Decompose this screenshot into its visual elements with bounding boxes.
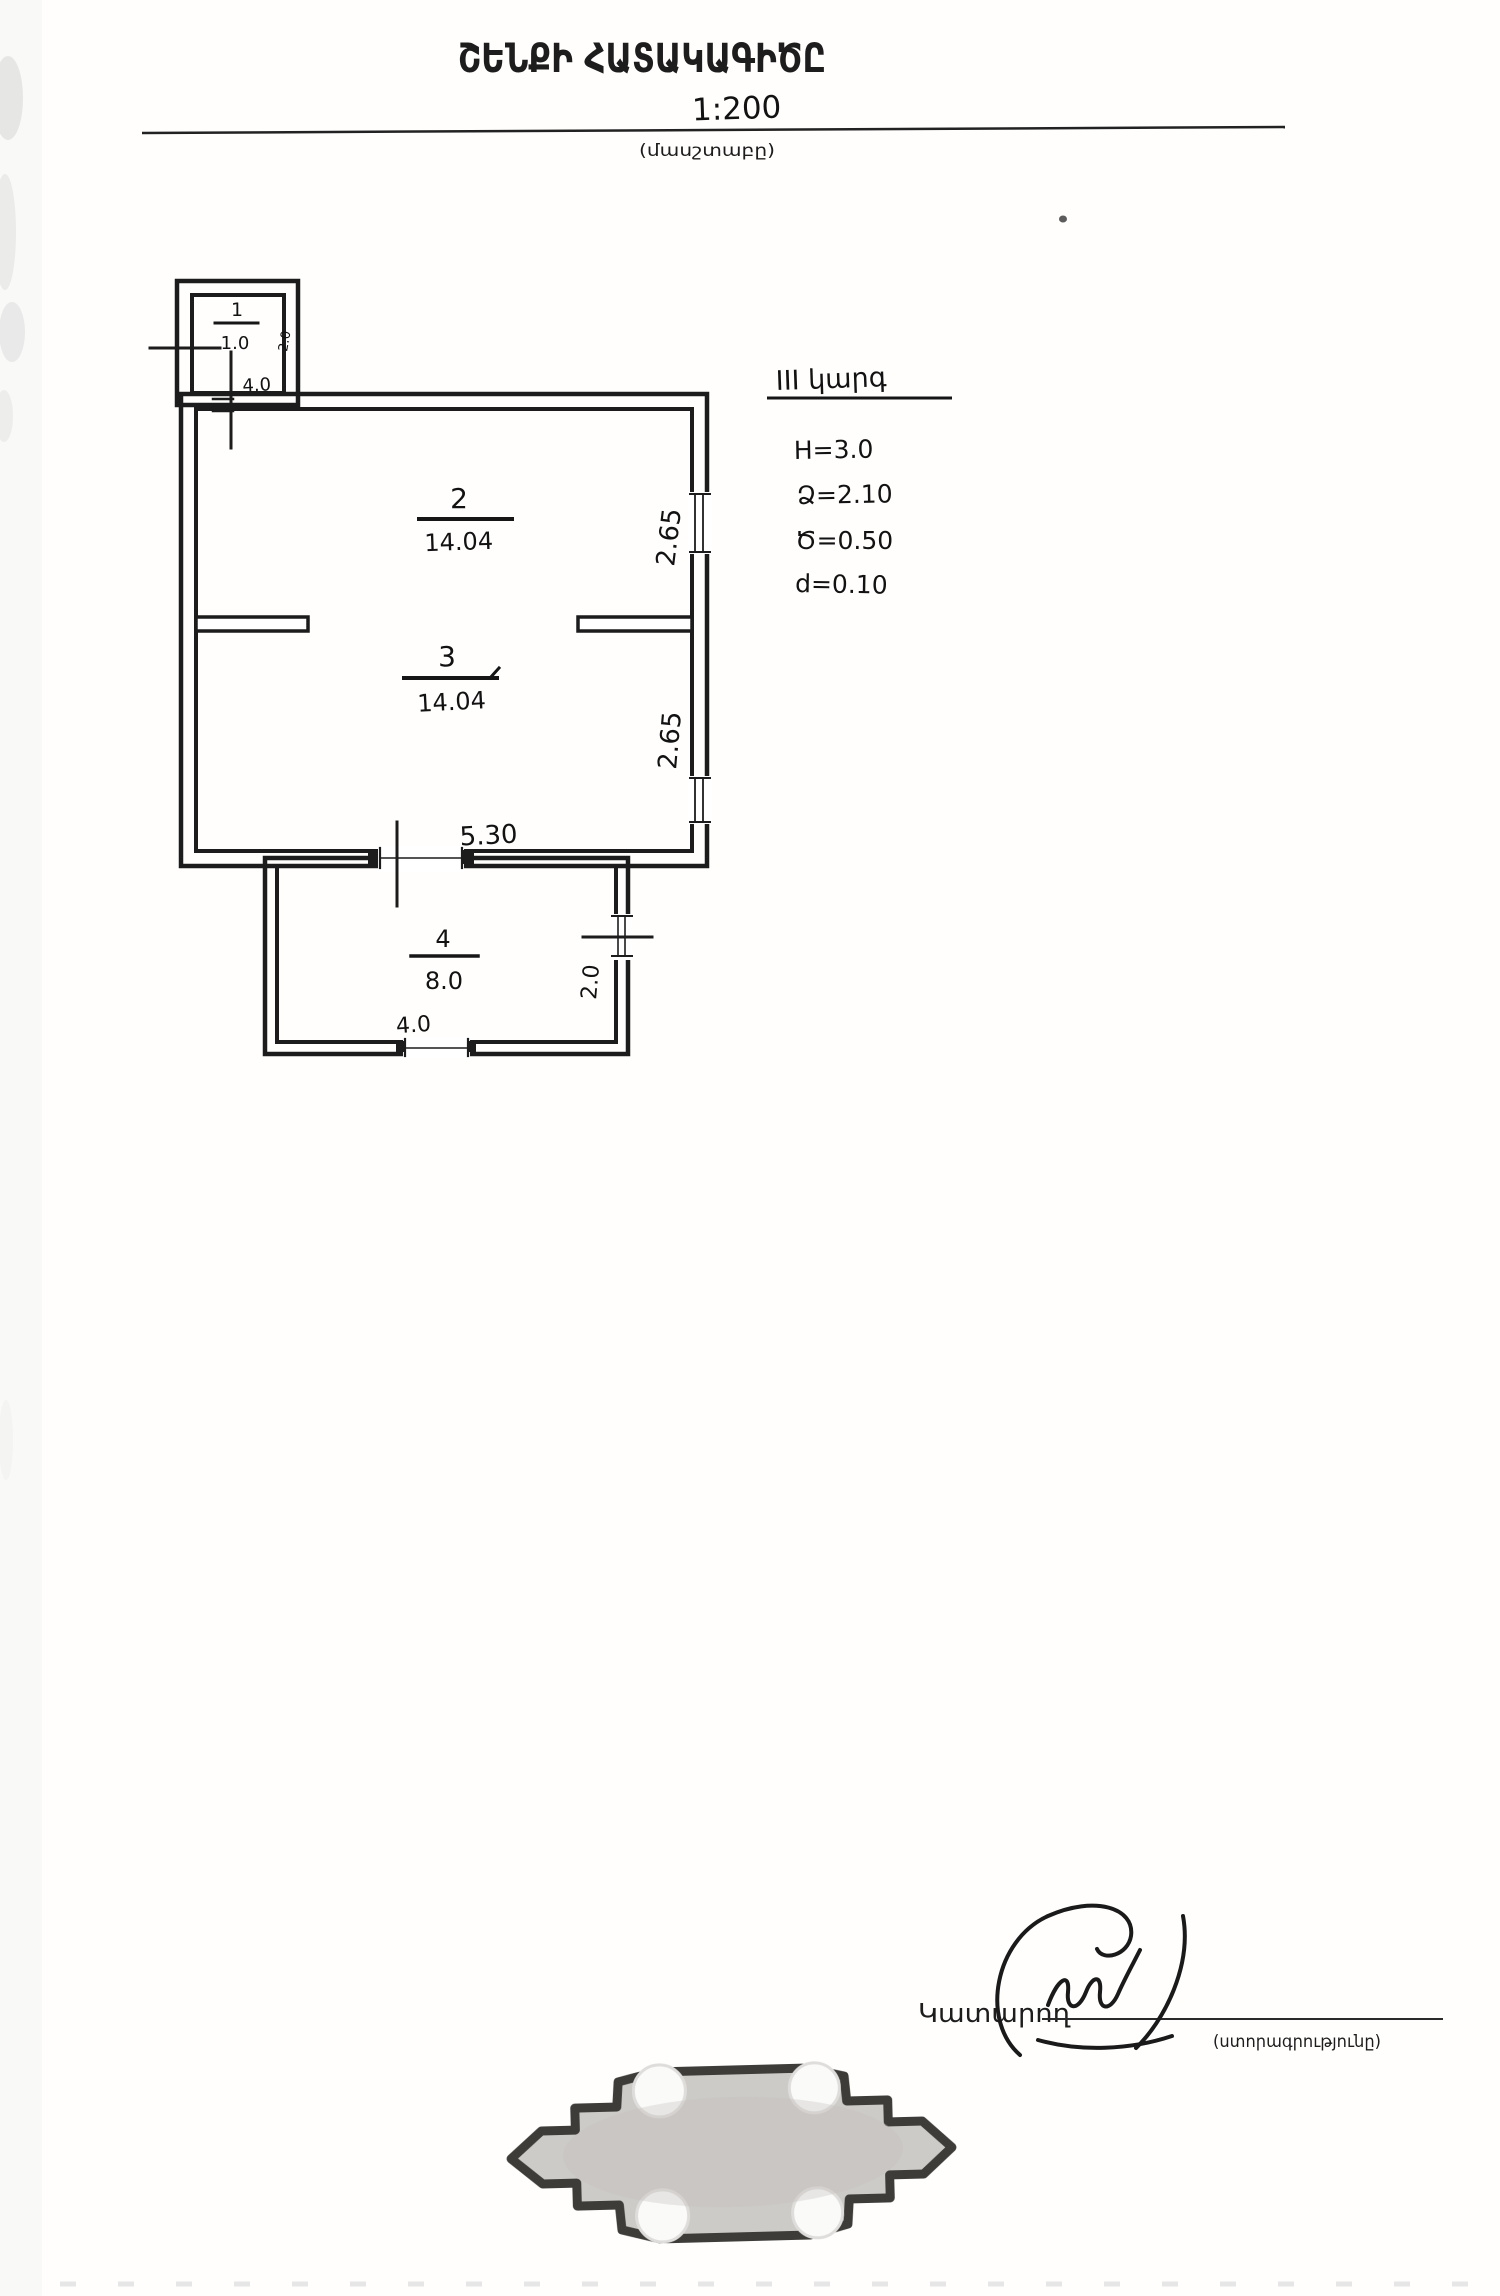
signature-mark [997,1906,1184,2055]
room4-area: 8.0 [425,967,463,995]
annex-inner-wall [277,866,616,1042]
window-room3 [688,776,712,824]
scale-rule [142,127,1285,133]
room1-area: 1.0 [221,333,250,354]
room4-width-dim: 4.0 [395,1012,432,1039]
room3-label: 3 14.04 [404,640,499,718]
header: ՇԵՆՔԻ ՀԱՏԱԿԱԳԻԾԸ 1:200 (մասշտաբը) [142,36,1285,161]
partition-right-stub [578,617,692,631]
room1-width-dim: 4.0 [242,374,272,396]
room1-number: 1 [231,299,243,321]
room3-number: 3 [438,640,456,673]
document-title: ՇԵՆՔԻ ՀԱՏԱԿԱԳԻԾԸ [458,36,826,82]
room2-label: 2 14.04 [419,482,512,557]
room3-height-dim: 2.65 [653,710,688,770]
note-line-2: Ձ=2.10 [797,479,893,510]
room2-height-dim: 2.65 [651,507,688,568]
scale-value: 1:200 [691,89,782,128]
partition-left-stub [196,617,308,631]
ink-speck [1059,216,1067,223]
signature-caption: (ստորագրությունը) [1213,2032,1381,2052]
window-room2 [688,492,712,554]
room2-number: 2 [450,482,468,515]
note-line-4: d=0.10 [795,569,888,600]
note-line-3: Ծ=0.50 [795,526,893,555]
footer: Կատարող (ստորագրությունը) [918,1906,1443,2055]
door-main-bottom [368,846,474,872]
notes-heading: III կարգ [775,362,887,397]
room2-area: 14.04 [424,527,494,557]
room3-area: 14.04 [417,686,487,718]
floor-plan-scan: ՇԵՆՔԻ ՀԱՏԱԿԱԳԻԾԸ 1:200 (մասշտաբը) [0,0,1500,2296]
rooms-width-dim: 5.30 [459,820,518,853]
door-annex-bottom [396,1037,476,1058]
room4-height-dim: 2.0 [577,963,605,1000]
openings [368,492,712,1058]
note-line-1: Н=3.0 [794,435,874,465]
scanned-document-page: ՇԵՆՔԻ ՀԱՏԱԿԱԳԻԾԸ 1:200 (մասշտաբը) [0,0,1500,2296]
room1-height-dim: 2.0 [276,330,294,353]
stamp [509,2057,954,2245]
notes-block: III կարգ Н=3.0 Ձ=2.10 Ծ=0.50 d=0.10 [767,362,952,599]
floor-plan: 1 1.0 4.0 2.0 2 14.04 3 14.04 4 8.0 [150,281,712,1058]
room4-label: 4 8.0 4.0 2.0 [395,925,605,1039]
scale-caption: (մասշտաբը) [639,141,775,161]
room4-number: 4 [435,925,450,953]
